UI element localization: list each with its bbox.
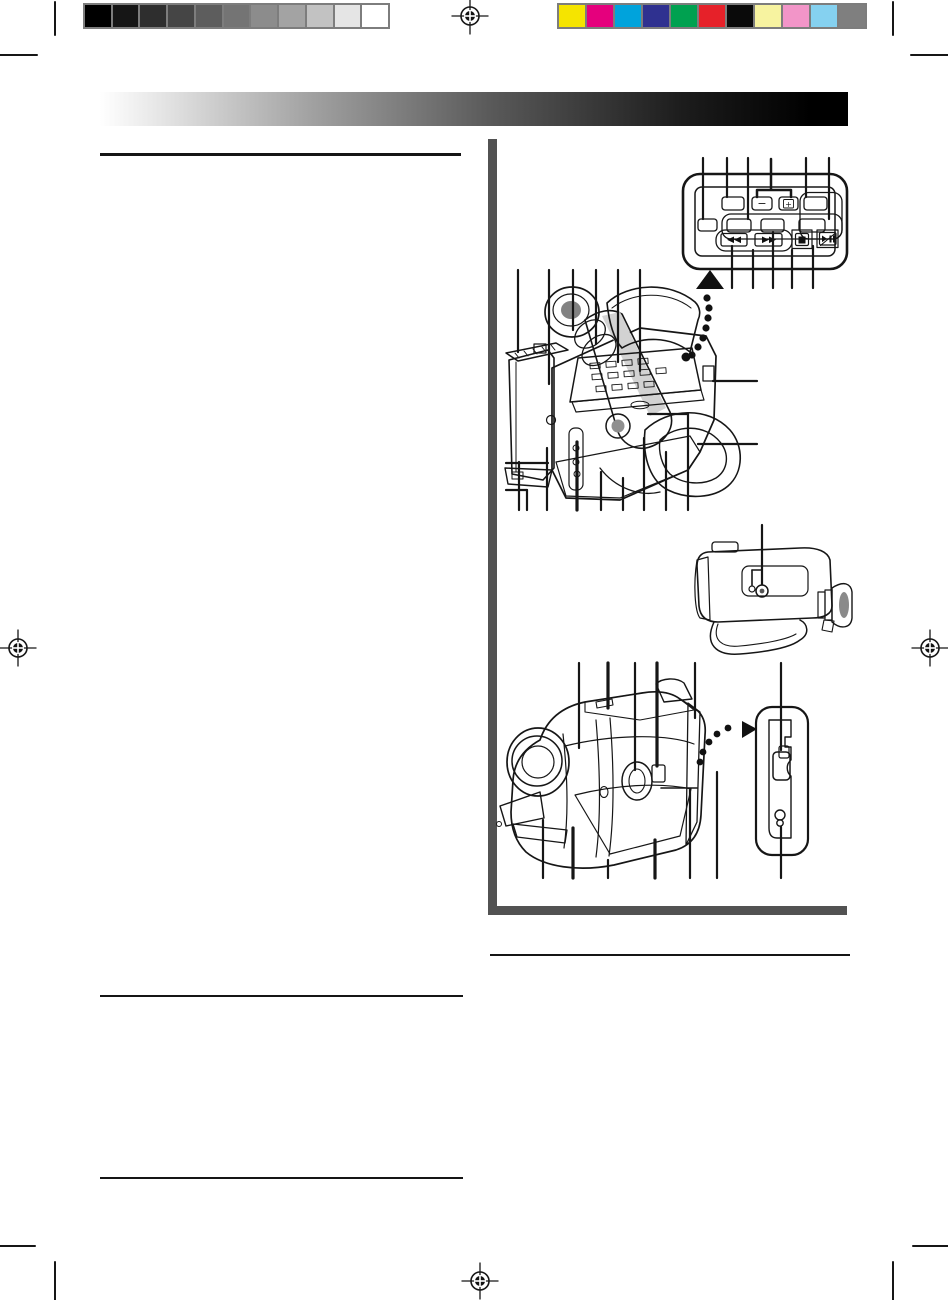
rear-edge-band (686, 703, 700, 845)
figure-camcorder-rear-view (505, 270, 757, 510)
diagram-art-layer: − + (0, 0, 948, 1300)
camcorder-body-front (511, 692, 705, 868)
stud-hole (749, 586, 755, 592)
registration-mark-right (912, 630, 948, 666)
eyepiece-opening (839, 592, 849, 618)
keyhole-bottom (777, 820, 783, 826)
registration-mark-top (452, 0, 488, 34)
tripod-socket-hole (760, 589, 765, 594)
rec-dial-center (612, 420, 625, 433)
minus-label: − (757, 197, 766, 210)
panel-shell (683, 174, 847, 269)
stop-icon (799, 237, 806, 244)
scanned-manual-page: − + (0, 0, 948, 1300)
front-foot (513, 824, 567, 843)
mid-band-line (596, 720, 599, 857)
figure-control-panel-closeup: − + (683, 158, 847, 359)
lower-shaded-panel (575, 785, 691, 854)
panel-button (698, 219, 717, 231)
registration-mark-bottom (462, 1263, 498, 1299)
cassette-seam (565, 737, 694, 746)
panel-button (722, 197, 744, 210)
side-strap-inner-line (716, 624, 796, 646)
side-view-leader-lines (752, 525, 762, 585)
microphone-wedge (500, 792, 544, 826)
panel-button (804, 197, 827, 210)
lens-glass (522, 746, 554, 778)
hand-strap-opening (659, 428, 726, 483)
registration-mark-left (0, 630, 36, 666)
eyecup-lens (561, 301, 581, 319)
pause-bar (833, 236, 835, 243)
figure-camcorder-front-view (497, 663, 758, 878)
keyhole-top (775, 810, 785, 820)
rewind-icon (727, 237, 741, 244)
up-arrow-icon (696, 270, 724, 289)
side-hand-strap (710, 620, 806, 654)
plus-label: + (785, 200, 792, 209)
mic-hole (497, 822, 502, 827)
right-arrow-icon (742, 721, 757, 738)
figure-battery-release-detail (756, 663, 808, 878)
zoom-latch (652, 765, 665, 782)
zoom-lever (622, 762, 652, 800)
evf-hump (656, 679, 692, 702)
eyepiece-ring (818, 592, 825, 618)
dotted-trail-front (697, 725, 732, 766)
top-face (585, 692, 694, 720)
zoom-lever-inner (629, 769, 645, 793)
side-latch (703, 366, 714, 381)
flap-inner-line (612, 295, 691, 308)
dotted-trail-endpoint (682, 353, 691, 362)
figure-camcorder-side-view (695, 525, 852, 654)
rear-view-leader-lines (506, 270, 757, 510)
